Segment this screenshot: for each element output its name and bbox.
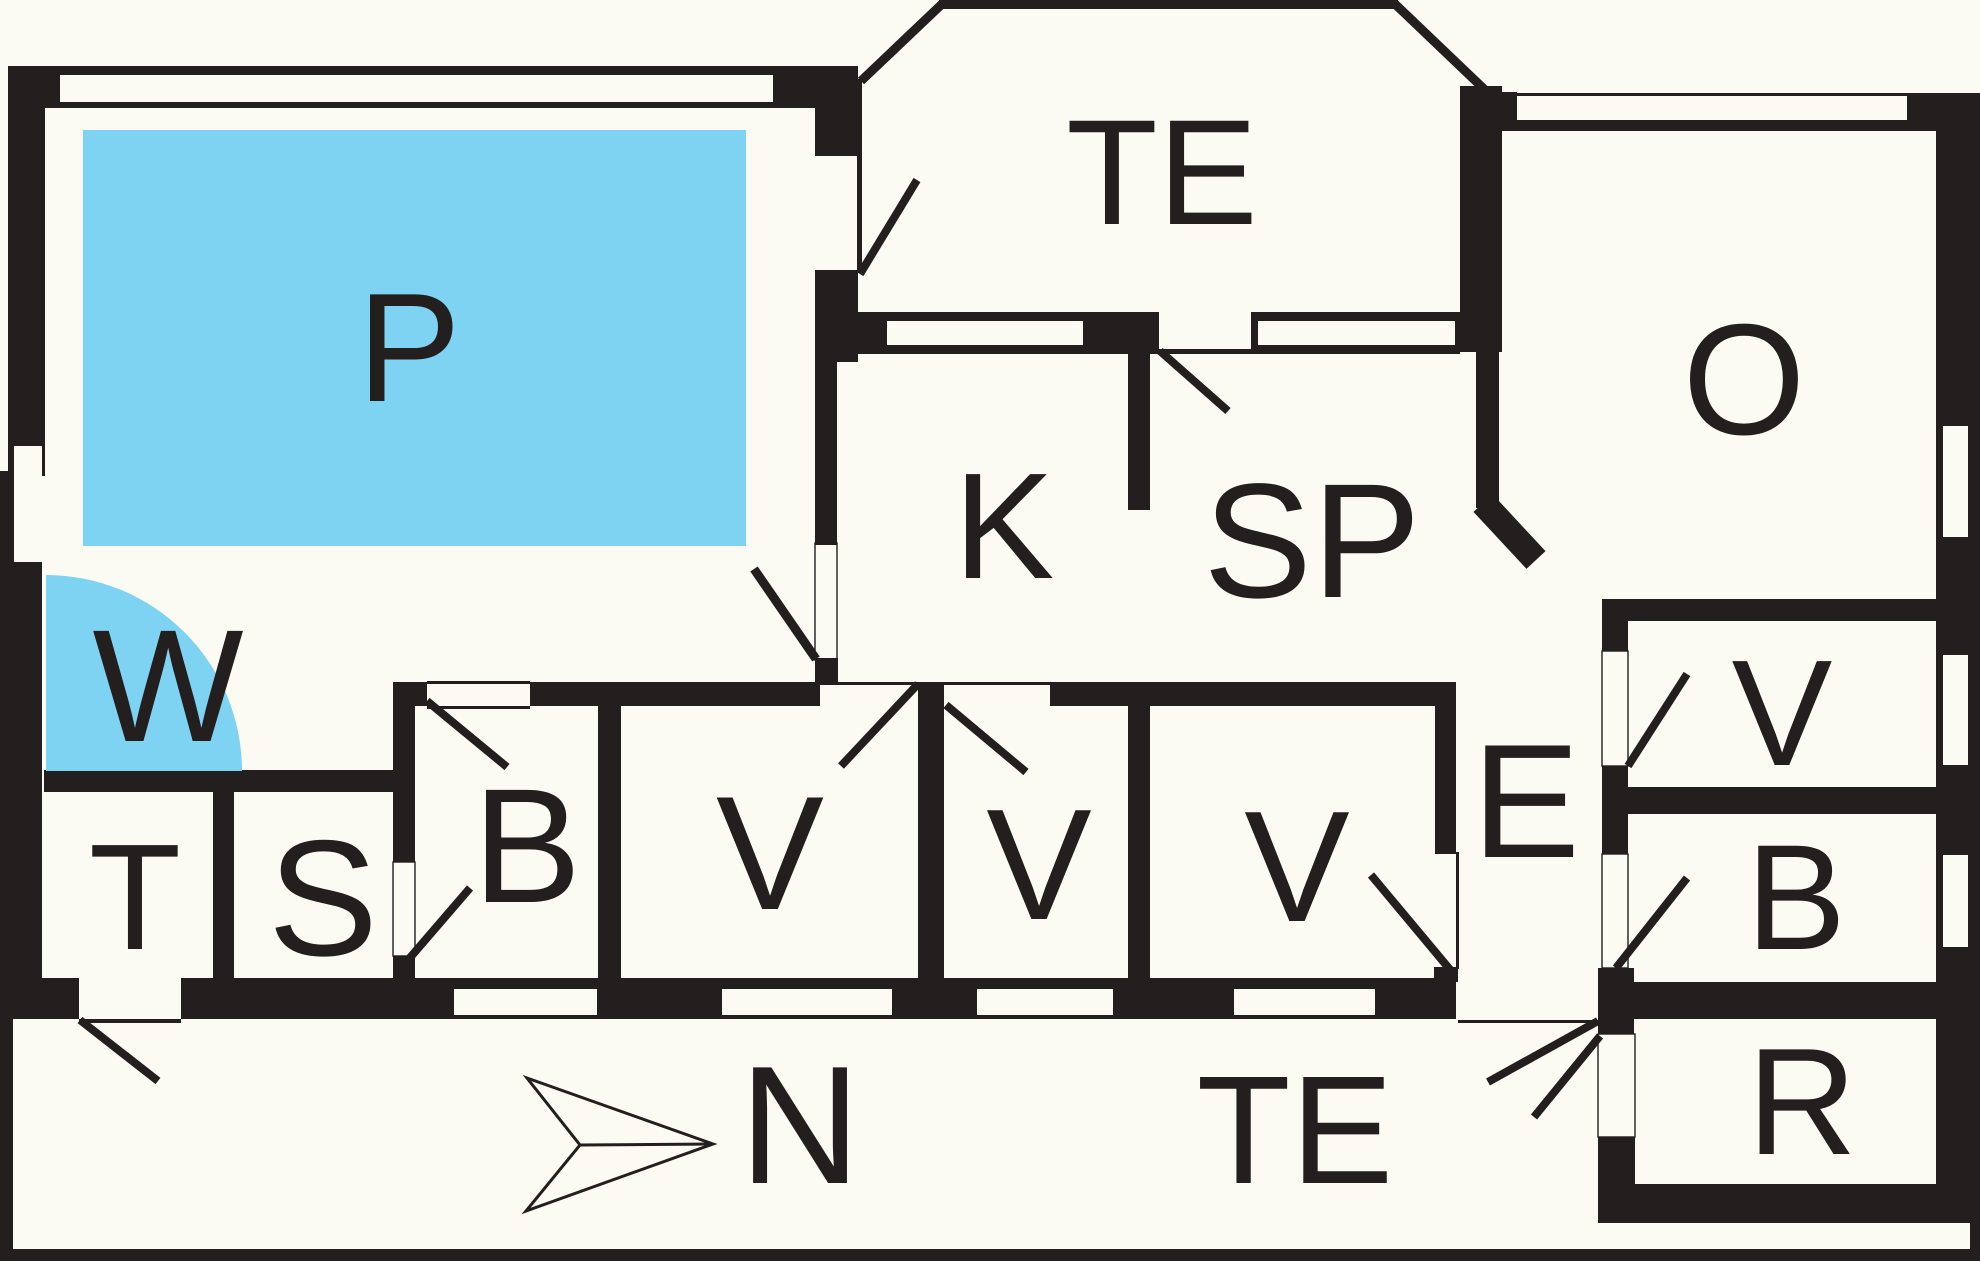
svg-text:P: P <box>357 261 460 434</box>
svg-text:W: W <box>92 596 243 775</box>
svg-text:V: V <box>1244 779 1349 955</box>
svg-text:S: S <box>268 806 378 990</box>
svg-text:SP: SP <box>1203 449 1420 632</box>
svg-text:V: V <box>1732 628 1833 797</box>
svg-text:TE: TE <box>1197 1044 1394 1216</box>
svg-text:TE: TE <box>1066 88 1258 256</box>
svg-text:B: B <box>473 754 582 937</box>
svg-text:T: T <box>89 812 181 981</box>
svg-text:V: V <box>986 777 1091 953</box>
svg-text:N: N <box>739 1031 860 1219</box>
svg-text:B: B <box>1746 813 1846 981</box>
svg-text:K: K <box>954 441 1055 610</box>
svg-text:V: V <box>716 763 824 944</box>
svg-text:R: R <box>1747 1017 1857 1187</box>
svg-text:O: O <box>1683 292 1806 468</box>
svg-text:E: E <box>1472 711 1580 892</box>
